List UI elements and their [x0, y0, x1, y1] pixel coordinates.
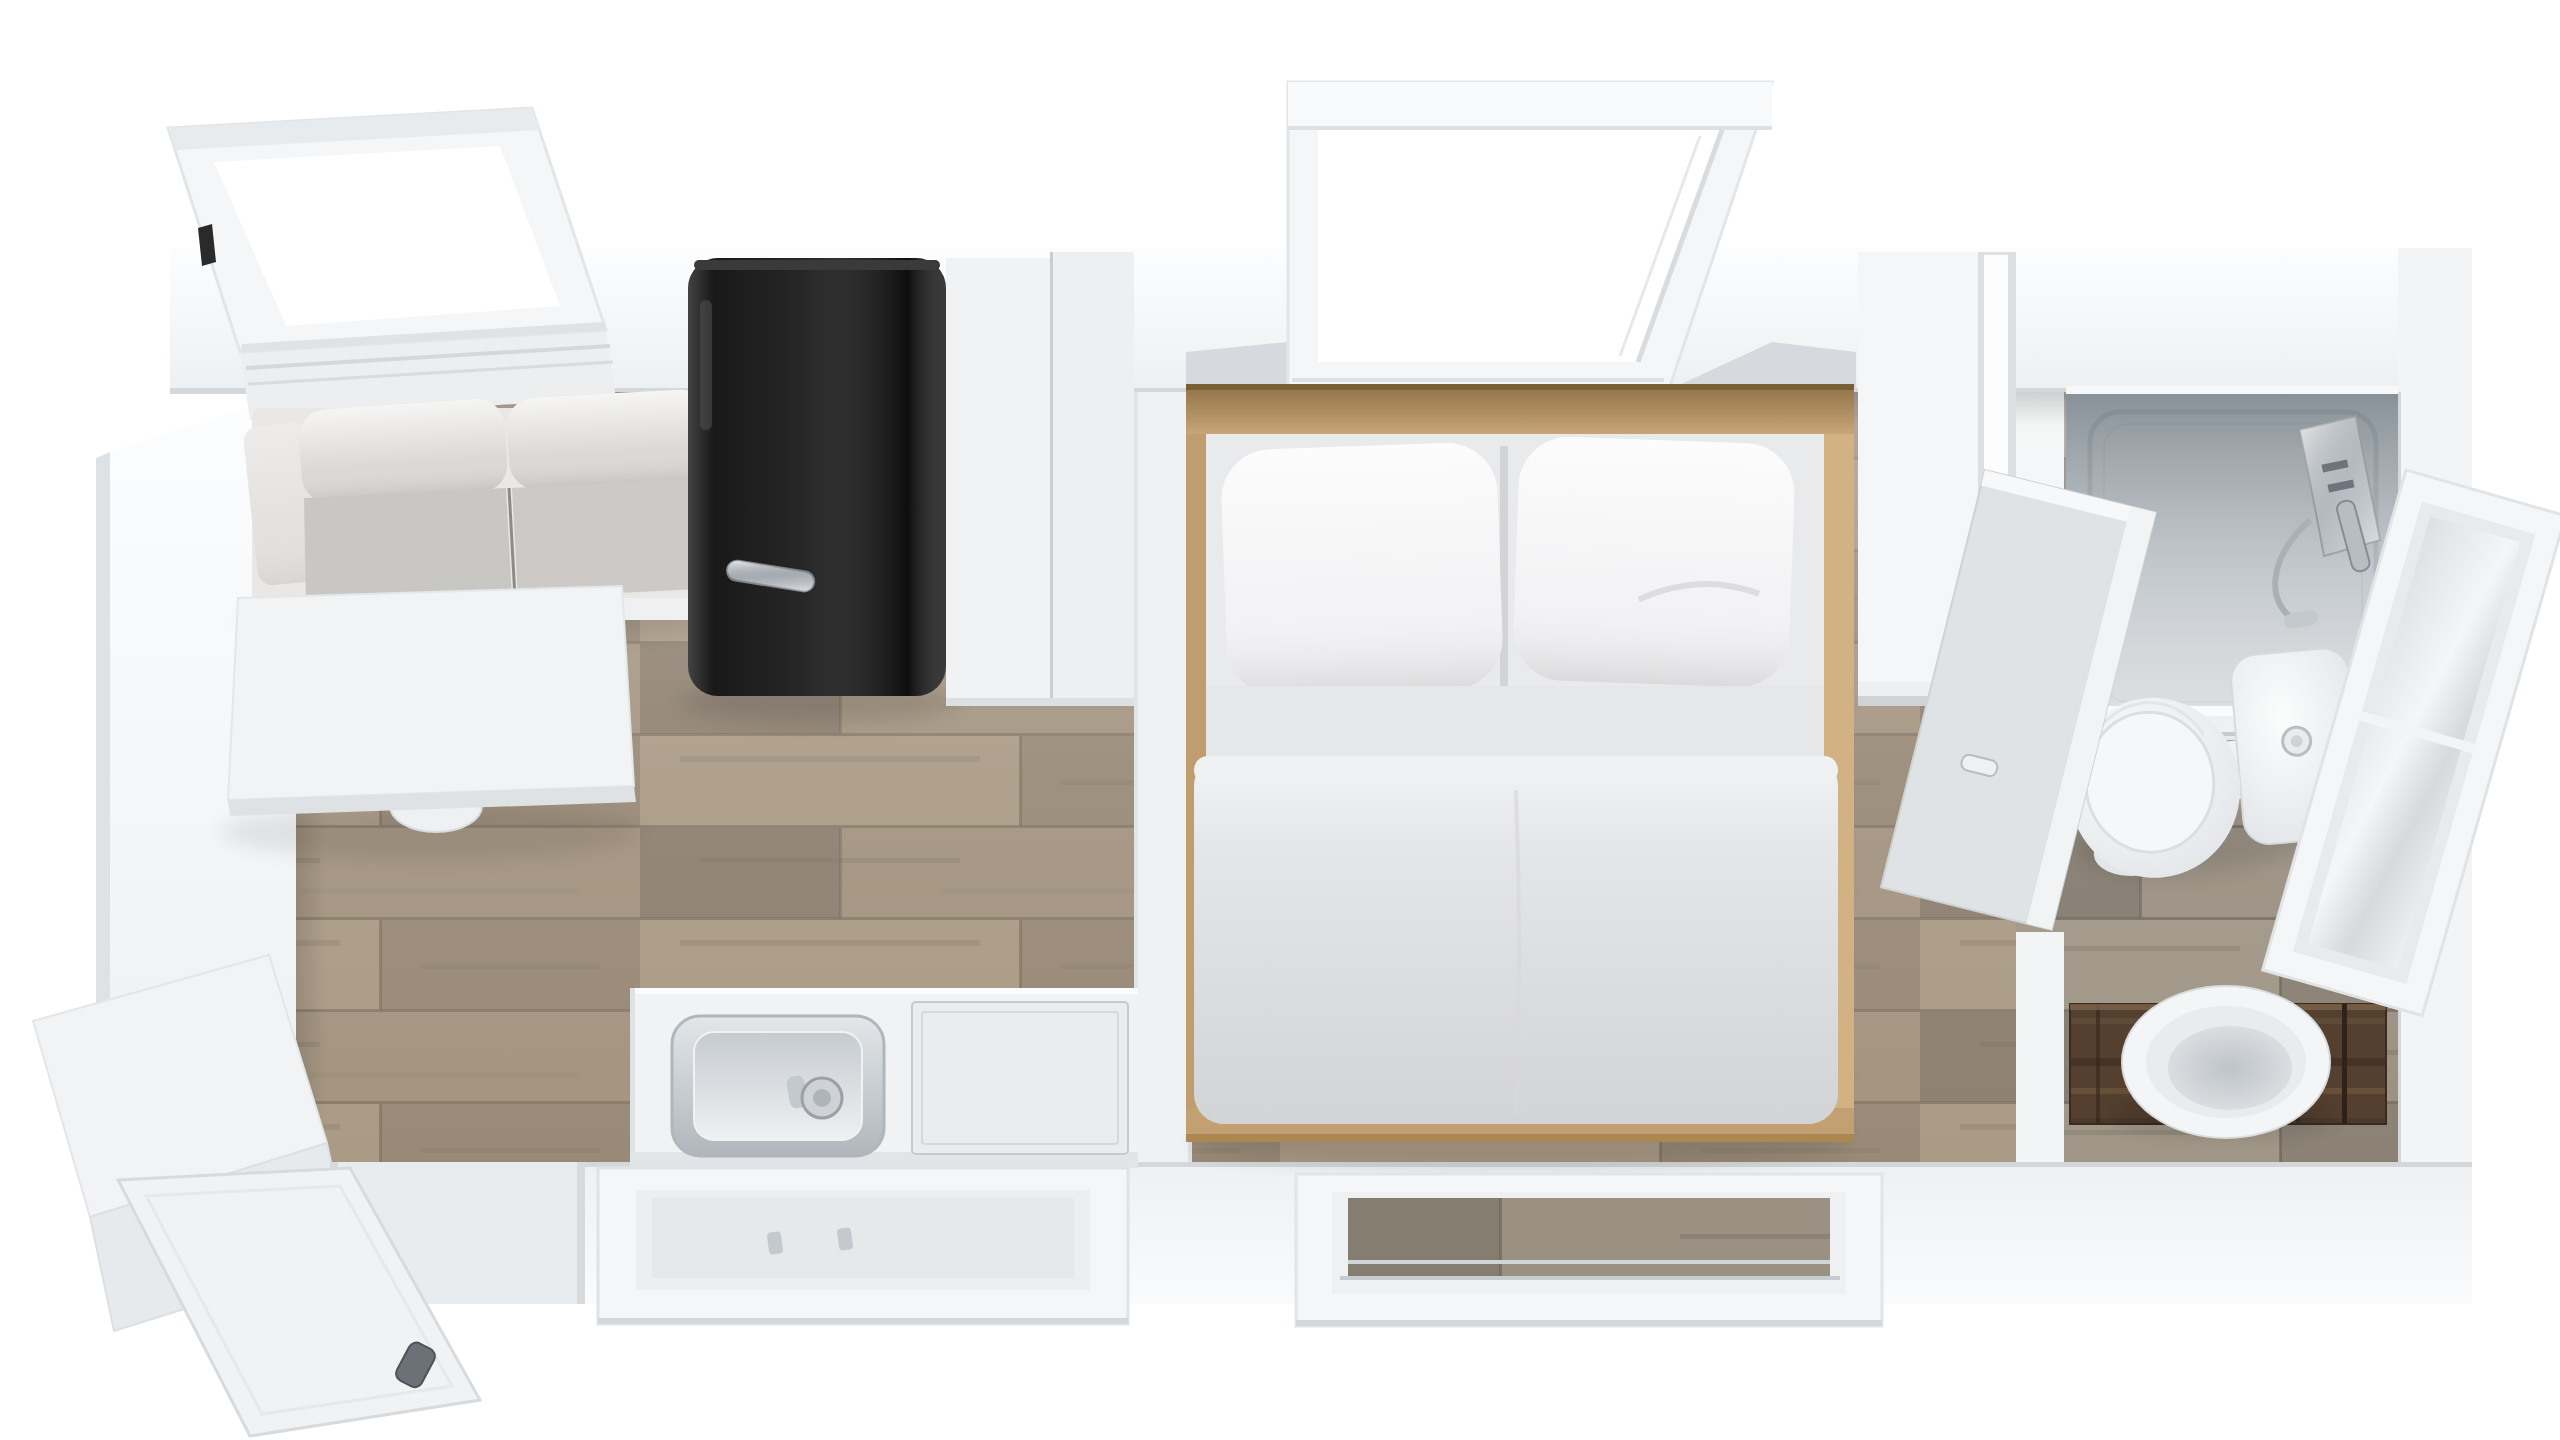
- sofa-seat-cushion: [512, 478, 718, 598]
- kitchen-counter: [630, 988, 1138, 1168]
- vessel-sink: [2122, 986, 2330, 1138]
- kitchen-window: [598, 1168, 1128, 1324]
- bed-headboard: [1186, 384, 1854, 434]
- pedestal-table: [220, 586, 640, 860]
- tall-cabinets: [946, 252, 1134, 706]
- cooktop-panel: [912, 1002, 1128, 1154]
- floorplan-svg: [0, 0, 2560, 1440]
- sink-bowl: [2168, 1026, 2292, 1110]
- kitchen-sink: [672, 1016, 884, 1156]
- cabinet-panel: [946, 258, 1052, 704]
- vanity-counter: [2070, 986, 2386, 1138]
- bedroom-window-opening: [1348, 1198, 1830, 1276]
- floorplan-render: [0, 0, 2560, 1440]
- refrigerator: [680, 258, 960, 722]
- double-bed: [1186, 384, 1854, 1170]
- bedroom-window: [1296, 1174, 1882, 1326]
- cabinet-panel: [1052, 252, 1134, 704]
- table-top: [228, 586, 634, 800]
- kitchen-window-glass: [652, 1198, 1074, 1278]
- divider-panel: [1134, 392, 1192, 1162]
